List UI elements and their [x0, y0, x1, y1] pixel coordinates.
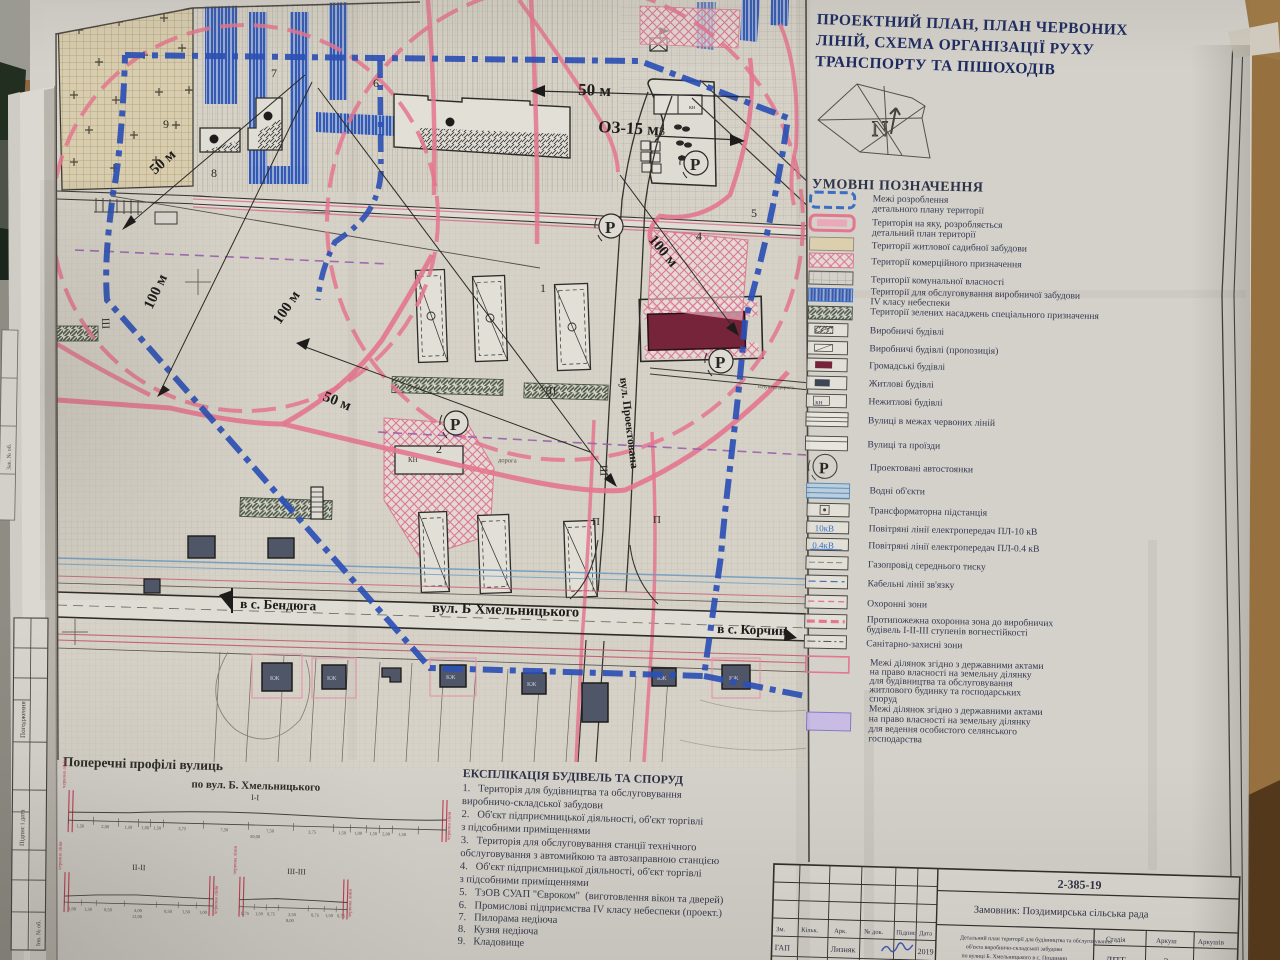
svg-text:Проектовані автостоянки: Проектовані автостоянки [870, 462, 973, 475]
svg-text:6: 6 [373, 76, 379, 90]
svg-text:50 м: 50 м [578, 80, 612, 100]
svg-text:2: 2 [436, 442, 442, 456]
svg-text:10кВ: 10кВ [815, 523, 835, 533]
svg-text:1: 1 [540, 281, 546, 295]
svg-text:Р: Р [690, 155, 700, 174]
svg-text:Р: Р [715, 353, 725, 372]
svg-text:існуюча дорога: існуюча дорога [758, 384, 795, 391]
svg-text:П: П [592, 516, 600, 528]
svg-text:Вулиці та проїзди: Вулиці та проїзди [867, 439, 940, 452]
svg-text:кн: кн [815, 398, 823, 406]
svg-text:детальний план території: детальний план території [872, 227, 976, 240]
svg-text:детального плану території: детального плану території [872, 203, 984, 216]
svg-text:Нежитлові будівлі: Нежитлові будівлі [868, 396, 943, 409]
svg-text:Р: Р [450, 415, 460, 434]
svg-text:Р: Р [819, 460, 829, 477]
svg-text:Виробничі будівлі: Виробничі будівлі [870, 325, 945, 338]
svg-text:кн: кн [689, 105, 696, 111]
svg-text:Ш: Ш [545, 385, 557, 397]
svg-text:Кабельні лінії зв'язку: Кабельні лінії зв'язку [867, 578, 954, 591]
svg-text:N: N [872, 116, 888, 141]
svg-text:Охоронні зони: Охоронні зони [867, 598, 927, 610]
svg-text:5: 5 [751, 206, 757, 220]
svg-text:господарства: господарства [868, 733, 923, 745]
svg-text:Водні об'єкти: Водні об'єкти [869, 485, 925, 497]
svg-text:Громадські будівлі: Громадські будівлі [869, 360, 946, 373]
svg-text:в с. Корчин: в с. Корчин [717, 621, 787, 638]
svg-text:4: 4 [696, 229, 702, 243]
svg-text:дорога: дорога [498, 457, 517, 465]
svg-text:Житлові будівлі: Житлові будівлі [869, 378, 935, 390]
svg-text:Зак. № об.: Зак. № об. [6, 443, 13, 470]
svg-text:П: П [653, 514, 661, 526]
svg-text:9: 9 [163, 117, 169, 131]
svg-text:ОЗ-15 м: ОЗ-15 м [598, 117, 660, 139]
svg-text:8: 8 [211, 166, 217, 180]
svg-text:Санітарно-захисні зони: Санітарно-захисні зони [866, 638, 962, 651]
svg-text:Р: Р [605, 218, 615, 237]
